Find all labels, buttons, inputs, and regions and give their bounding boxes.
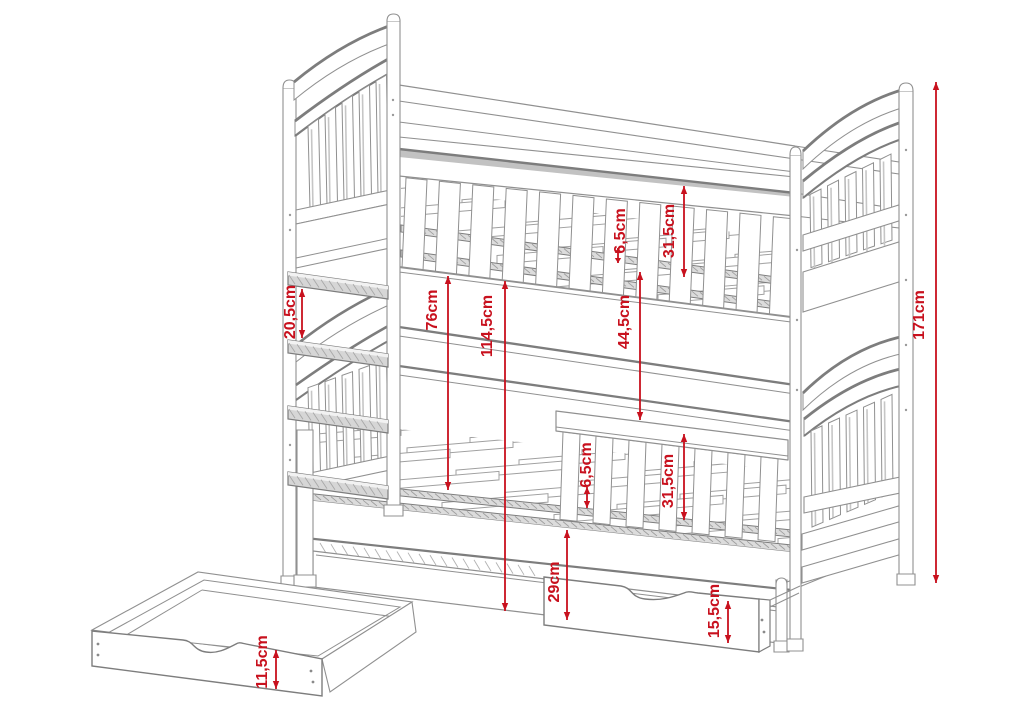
svg-text:31,5cm: 31,5cm xyxy=(661,204,678,258)
svg-text:114,5cm: 114,5cm xyxy=(479,295,496,357)
svg-text:29cm: 29cm xyxy=(546,562,563,603)
svg-text:11,5cm: 11,5cm xyxy=(254,635,271,688)
svg-text:20,5cm: 20,5cm xyxy=(282,285,299,339)
svg-text:6,5cm: 6,5cm xyxy=(612,208,629,253)
svg-text:15,5cm: 15,5cm xyxy=(706,584,723,638)
svg-text:6,5cm: 6,5cm xyxy=(578,442,595,487)
svg-text:31,5cm: 31,5cm xyxy=(660,454,677,508)
svg-text:44,5cm: 44,5cm xyxy=(616,295,633,349)
svg-text:171cm: 171cm xyxy=(911,290,928,340)
svg-text:76cm: 76cm xyxy=(424,290,441,331)
